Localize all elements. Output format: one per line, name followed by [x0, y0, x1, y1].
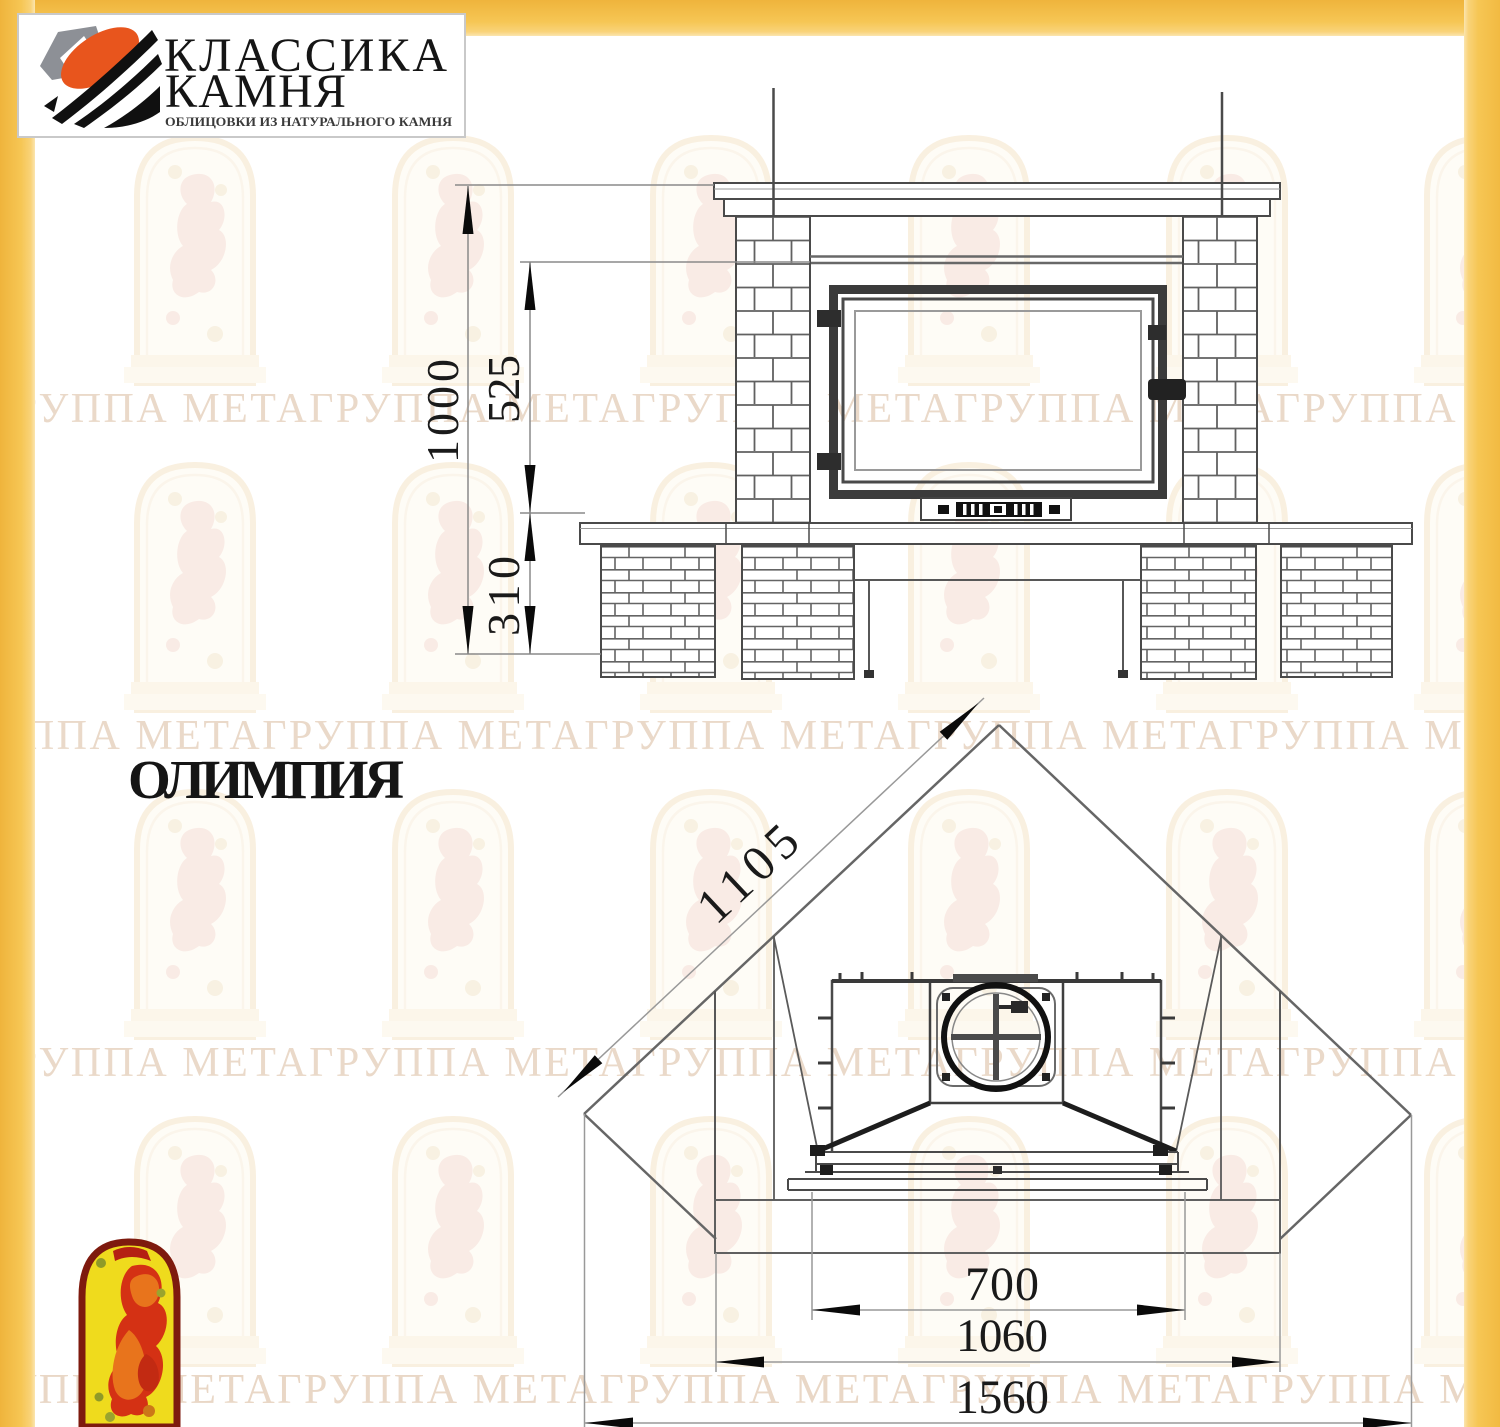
- svg-text:1060: 1060: [956, 1310, 1048, 1362]
- svg-text:525: 525: [478, 355, 529, 423]
- svg-text:1560: 1560: [955, 1371, 1049, 1424]
- svg-text:ГАГРУППА МЕТАГРУППА МЕТАГРУППА: ГАГРУППА МЕТАГРУППА МЕТАГРУППА МЕТАГРУПП…: [0, 1367, 1500, 1413]
- svg-text:ОЛИМПИЯ: ОЛИМПИЯ: [128, 749, 404, 810]
- svg-text:КАМНЯ: КАМНЯ: [165, 65, 346, 118]
- svg-text:700: 700: [965, 1258, 1039, 1311]
- svg-text:МЕТАГРУППА МЕТАГРУППА МЕТАГРУП: МЕТАГРУППА МЕТАГРУППА МЕТАГРУППА МЕТАГРУ…: [0, 1040, 1500, 1086]
- svg-text:310: 310: [478, 556, 529, 636]
- svg-text:ОБЛИЦОВКИ ИЗ НАТУРАЛЬНОГО КАМН: ОБЛИЦОВКИ ИЗ НАТУРАЛЬНОГО КАМНЯ: [165, 114, 453, 129]
